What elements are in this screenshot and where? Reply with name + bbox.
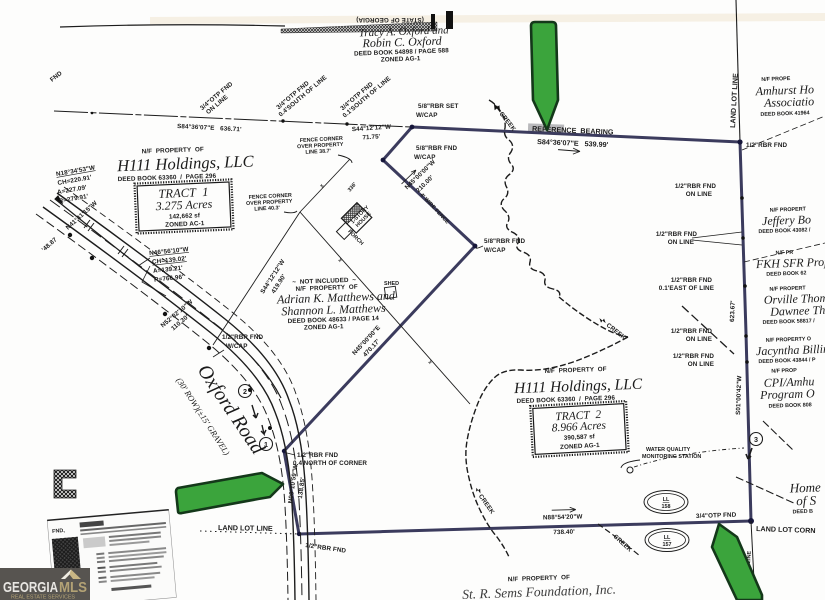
svg-text:0.4'NORTH OF CORNER: 0.4'NORTH OF CORNER: [293, 460, 367, 467]
svg-text:0.1'EAST OF LINE: 0.1'EAST OF LINE: [659, 285, 714, 292]
svg-text:738.40': 738.40': [553, 529, 575, 537]
svg-text:1/2"RBR FND: 1/2"RBR FND: [675, 183, 717, 190]
svg-text:MONITORING STATION: MONITORING STATION: [642, 454, 701, 460]
svg-text:3.275 Acres: 3.275 Acres: [154, 197, 213, 214]
svg-text:N/F PROPE: N/F PROPE: [761, 76, 791, 83]
svg-text:5/8"RBR FND: 5/8"RBR FND: [416, 145, 458, 152]
svg-text:LAND LOT LINE: LAND LOT LINE: [218, 523, 273, 533]
svg-text:MLS: MLS: [59, 579, 87, 596]
svg-text:ON LINE: ON LINE: [686, 336, 712, 343]
svg-text:W/CAP: W/CAP: [484, 247, 506, 254]
svg-text:Dawnee Tho: Dawnee Tho: [769, 303, 825, 319]
svg-text:W/CAP: W/CAP: [226, 343, 248, 350]
svg-text:N88°54'20"W: N88°54'20"W: [543, 512, 583, 521]
svg-text:GEORGIA: GEORGIA: [3, 579, 58, 596]
svg-text:LL: LL: [664, 535, 671, 541]
svg-text:1/2"RBR FND: 1/2"RBR FND: [671, 277, 713, 284]
svg-text:ON LINE: ON LINE: [668, 239, 694, 246]
svg-text:Program O: Program O: [759, 386, 815, 402]
svg-text:W/CAP: W/CAP: [416, 112, 438, 119]
svg-text:1/2"RBR FND: 1/2"RBR FND: [297, 452, 339, 459]
svg-text:2: 2: [243, 387, 247, 396]
svg-text:3/4"OTP FND: 3/4"OTP FND: [696, 512, 737, 520]
svg-text:1/2"RBR FND: 1/2"RBR FND: [673, 353, 715, 360]
svg-text:3: 3: [754, 435, 758, 444]
svg-text:DEED B: DEED B: [792, 509, 813, 516]
svg-text:N/F PROP: N/F PROP: [771, 368, 797, 375]
svg-text:REAL ESTATE SERVICES: REAL ESTATE SERVICES: [11, 595, 76, 600]
svg-text:ON LINE: ON LINE: [688, 361, 714, 368]
svg-text:SHED: SHED: [384, 281, 399, 287]
svg-text:1/2"RBR FND: 1/2"RBR FND: [656, 231, 698, 238]
svg-text:S01°00'42"W: S01°00'42"W: [734, 376, 743, 416]
svg-text:ZONED AG-1: ZONED AG-1: [381, 55, 421, 63]
svg-text:LL: LL: [663, 497, 670, 503]
svg-text:623.67': 623.67': [729, 300, 737, 322]
svg-text:Jacyntha Billin: Jacyntha Billin: [756, 342, 825, 359]
svg-text:ON LINE: ON LINE: [686, 191, 712, 198]
svg-text:157: 157: [663, 542, 672, 548]
svg-text:Associatio: Associatio: [763, 94, 814, 110]
svg-text:WATER QUALITY: WATER QUALITY: [646, 447, 691, 453]
svg-text:5/8"RBR SET: 5/8"RBR SET: [418, 103, 459, 110]
svg-text:142,662 sf: 142,662 sf: [169, 212, 201, 220]
svg-text:of S: of S: [796, 493, 817, 509]
svg-text:(STATE OF GEORGIA): (STATE OF GEORGIA): [356, 16, 424, 23]
svg-text:71.75': 71.75': [362, 133, 381, 141]
svg-text:1: 1: [264, 440, 268, 449]
svg-text:FND,: FND,: [52, 528, 66, 535]
svg-text:Jeffery Bo: Jeffery Bo: [762, 212, 811, 228]
svg-text:1/2"RBR FND: 1/2"RBR FND: [222, 334, 264, 341]
svg-text:158: 158: [662, 504, 671, 510]
svg-text:ZONED AG-1: ZONED AG-1: [304, 323, 344, 331]
